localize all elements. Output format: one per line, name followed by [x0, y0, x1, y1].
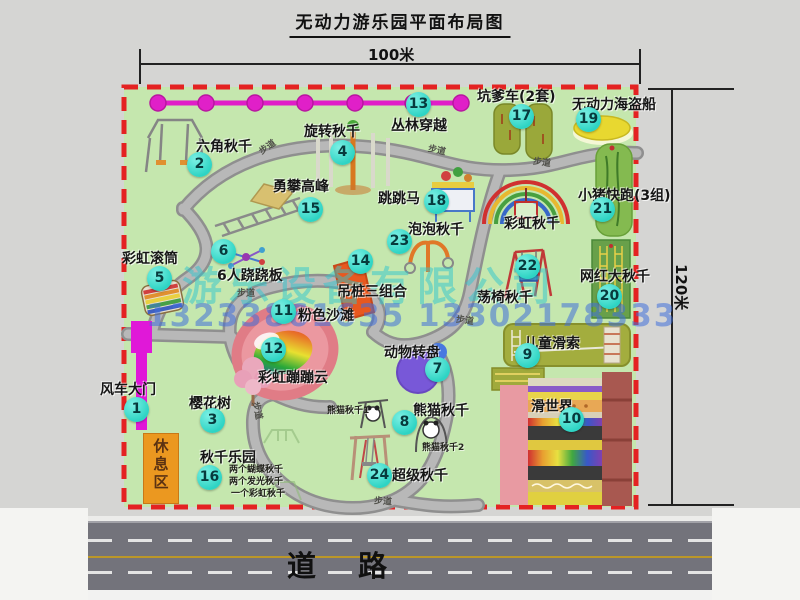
sub-label-4: 一个彩虹秋千 [231, 486, 285, 499]
attraction-label-11: 粉色沙滩 [298, 305, 354, 325]
extra-label-0: 彩虹秋千 [504, 213, 560, 233]
attraction-label-13: 丛林穿越 [391, 115, 447, 135]
attraction-badge-15: 15 [298, 197, 323, 222]
attraction-badge-16: 16 [197, 465, 222, 490]
attraction-badge-3: 3 [200, 408, 225, 433]
road-lower-band [88, 590, 712, 600]
attraction-badge-6: 6 [211, 239, 236, 264]
walkway-marker-2: 步道 [532, 154, 552, 169]
attraction-badge-10: 10 [559, 407, 584, 432]
attraction-badge-13: 13 [406, 92, 431, 117]
attraction-badge-8: 8 [392, 410, 417, 435]
sub-label-0: 熊猫秋千1 [327, 403, 369, 416]
attraction-badge-20: 20 [597, 284, 622, 309]
attraction-badge-11: 11 [271, 299, 296, 324]
road-label: 道路 [287, 543, 429, 585]
attraction-badge-4: 4 [330, 140, 355, 165]
attraction-badge-1: 1 [124, 397, 149, 422]
attraction-label-23: 泡泡秋千 [408, 219, 464, 239]
sub-label-1: 熊猫秋千2 [422, 440, 464, 453]
attraction-badge-21: 21 [590, 197, 615, 222]
attraction-badge-2: 2 [187, 152, 212, 177]
dimension-top-label: 100米 [368, 44, 414, 65]
attraction-badge-7: 7 [425, 357, 450, 382]
attraction-label-12: 彩虹蹦蹦云 [258, 367, 328, 387]
attraction-label-15: 勇攀高峰 [273, 176, 329, 196]
walkway-marker-6: 步道 [374, 493, 393, 507]
attraction-badge-17: 17 [509, 104, 534, 129]
attraction-label-4: 旋转秋千 [304, 121, 360, 141]
attraction-label-22: 荡椅秋千 [477, 287, 533, 307]
attraction-label-18: 跳跳马 [378, 188, 420, 208]
attraction-badge-18: 18 [424, 189, 449, 214]
attraction-label-8: 熊猫秋千 [413, 400, 469, 420]
road-dash-line-top [88, 539, 712, 542]
dimension-right-label: 120米 [671, 264, 692, 310]
attraction-badge-14: 14 [348, 249, 373, 274]
attraction-label-1: 风车大门 [100, 379, 156, 399]
rest-area: 休息区 [143, 433, 179, 504]
attraction-label-24: 超级秋千 [392, 465, 448, 485]
screenshot-stage: 无动力游乐园平面布局图 100米 120米 游乐设备有限公司 132338616… [0, 0, 800, 600]
attraction-badge-23: 23 [387, 229, 412, 254]
walkway-marker-4: 步道 [455, 312, 475, 327]
attraction-badge-19: 19 [576, 107, 601, 132]
attraction-badge-22: 22 [515, 254, 540, 279]
attraction-badge-12: 12 [261, 337, 286, 362]
attraction-badge-5: 5 [147, 266, 172, 291]
page-title: 无动力游乐园平面布局图 [290, 8, 511, 38]
attraction-label-5: 彩虹滚筒 [122, 248, 178, 268]
walkway-marker-3: 步道 [237, 286, 255, 299]
attraction-badge-9: 9 [515, 343, 540, 368]
attraction-badge-24: 24 [367, 463, 392, 488]
attraction-label-20: 网红大秋千 [580, 266, 650, 286]
attraction-label-6: 6人跷跷板 [217, 265, 283, 285]
attraction-label-14: 吊桩三组合 [337, 281, 407, 301]
slide-world-icon [492, 368, 632, 506]
rest-area-label: 休息区 [151, 438, 172, 492]
watermark-phone: 13233861635 13302178333 [146, 298, 677, 334]
attraction-label-17: 坑爹车(2套) [477, 86, 556, 106]
